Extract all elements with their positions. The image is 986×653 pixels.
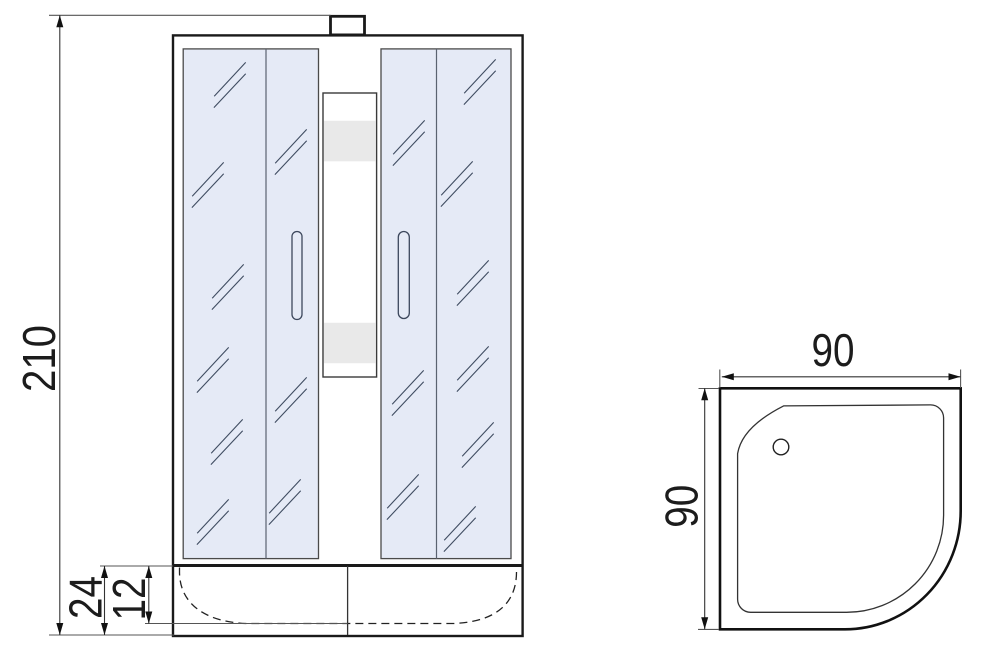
svg-text:210: 210 — [13, 325, 65, 392]
svg-text:12: 12 — [103, 578, 155, 621]
svg-text:90: 90 — [656, 485, 708, 528]
svg-text:90: 90 — [812, 324, 855, 376]
